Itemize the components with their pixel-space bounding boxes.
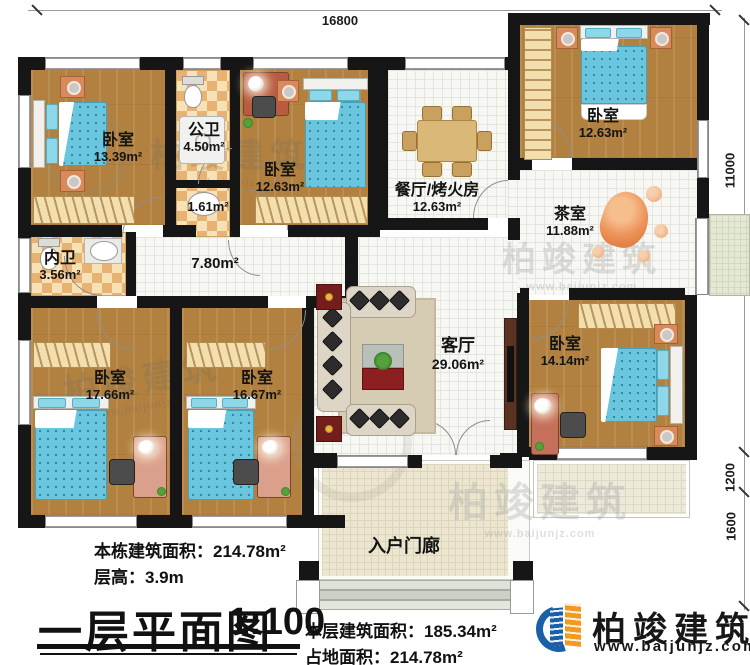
bed-foot-sheet [581,104,647,120]
tv-icon [507,346,514,402]
side-patio-floor [709,214,750,296]
window [18,340,31,425]
desk-chair [109,459,135,485]
wall [508,218,520,240]
wall [408,455,422,468]
dining-chair [402,131,417,151]
bed-pillow [46,104,58,130]
bed [581,46,647,104]
wardrobe [186,342,266,368]
bed-pillow [222,398,248,408]
window [45,515,137,528]
bed-headboard [33,100,45,168]
dimension-line-top [28,10,722,11]
wardrobe [33,196,135,224]
dining-chair [452,106,472,121]
window [405,57,505,70]
sink-icon [188,192,220,216]
wall [288,225,380,237]
window [557,447,647,460]
toilet-icon [38,238,60,247]
wall [137,296,268,308]
dining-chair [422,162,442,177]
toilet-icon [40,247,58,270]
bed-sheet [581,39,647,51]
porch-column [500,453,522,468]
wall [368,57,388,225]
window [18,238,31,293]
porch-column [311,453,337,468]
brand-logo-icon [534,600,588,658]
shower-icon [179,116,225,164]
nightstand [60,76,85,98]
bed-pillow [38,398,66,408]
bed-pillow [616,28,642,38]
wall [163,225,196,237]
bed-pillow [309,90,332,101]
desk-lamp-icon [248,76,264,92]
dining-chair [477,131,492,151]
desk-chair [233,459,259,485]
wall [380,218,488,230]
sink-icon [90,241,118,261]
desk-lamp-icon [138,440,156,455]
tea-decor [638,250,650,262]
title-underline [37,644,300,649]
side-table [316,284,342,310]
porch-step [318,580,532,590]
wall [508,13,710,25]
bed-sheet [305,102,366,120]
wall [126,232,136,296]
desk-lamp-icon [534,398,552,414]
wall [302,308,314,515]
wall [517,293,529,457]
patio-door-window [695,218,709,295]
bed-pillow [337,90,360,101]
wardrobe [33,342,111,368]
wall [170,308,182,515]
porch-step [318,590,532,600]
wall [520,288,529,300]
plant-icon [374,352,392,370]
bed-pillow [46,138,58,164]
nightstand [277,80,299,102]
footprint-stat: 占地面积：214.78m² [305,643,463,665]
desk-lamp-icon [262,440,280,455]
logo-building-blue-icon [550,607,563,646]
plant-icon [535,442,544,451]
title-underline-thin [40,653,297,655]
nightstand [556,27,578,49]
bed-pillow [191,398,217,408]
dining-chair [422,106,442,121]
window [192,515,287,528]
plant-icon [281,487,290,496]
window [697,120,709,178]
terrace-floor [537,464,686,514]
nightstand [654,426,678,446]
bed-sheet [601,348,619,422]
wall [685,295,697,447]
dimension-line-right [744,18,745,610]
porch-column [299,561,319,580]
bed-headboard [670,346,683,424]
window [337,455,408,468]
wall [697,13,709,218]
nightstand [650,27,672,49]
bed-sheet [35,410,107,428]
toilet-icon [182,76,204,85]
wall [572,158,697,170]
coffee-table [362,368,404,390]
dining-chair [452,162,472,177]
bed-sheet [188,410,254,428]
logo-building-orange-icon [565,603,581,647]
tea-decor [646,186,662,202]
wall [165,70,176,228]
tea-decor [592,246,604,258]
tea-decor [654,224,668,238]
floor-area-stat: 本层建筑面积：185.34m² [305,617,497,642]
brand-website: www.baijunjz.com [594,638,750,655]
building-area-stat: 本栋建筑面积：214.78m² [94,537,286,562]
plant-icon [157,487,166,496]
window [183,57,221,70]
floor-plan: 16800 11000 1200 1600 柏竣建筑 www.baijunjz.… [0,0,750,665]
wall [569,288,685,300]
bed-pillow [585,28,611,38]
bed-pillow [657,350,669,380]
nightstand [60,170,85,192]
toilet-icon [184,85,202,108]
window [45,57,140,70]
wall [18,296,97,308]
wardrobe [255,196,368,224]
dining-table [417,120,477,162]
wall [18,225,122,237]
plant-icon [243,118,253,128]
bed-pillow [657,386,669,416]
bed-pillow [72,398,100,408]
side-table [316,416,342,442]
dimension-top-width: 16800 [300,13,380,28]
dimension-steps-depth: 1600 [724,497,739,557]
floor-height-stat: 层高：3.9m [94,563,184,588]
bed-sheet [59,102,75,166]
desk-chair [560,412,586,438]
nightstand [654,324,678,344]
dimension-right-height: 11000 [723,141,738,201]
wall [508,13,520,180]
window [18,95,31,168]
bed-headboard [303,78,368,90]
closet [524,27,552,160]
porch-column [513,561,533,580]
desk-chair [252,96,276,118]
column-pedestal [510,580,534,614]
porch-step [318,600,532,610]
window [253,57,348,70]
